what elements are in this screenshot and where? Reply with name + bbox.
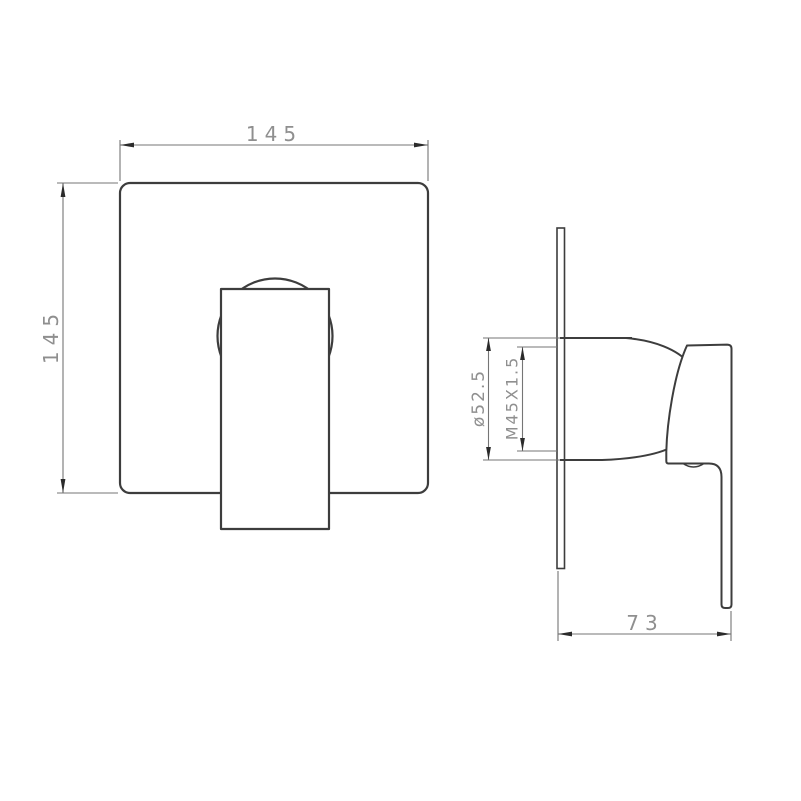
front-width-label: 145 [246, 122, 302, 146]
thread-dimension: M45X1.5 [503, 347, 558, 451]
front-height-dimension: 145 [39, 183, 118, 493]
arrowhead-up-icon [486, 338, 491, 351]
side-plate-outline [557, 228, 565, 569]
arrowhead-down-icon [486, 447, 491, 460]
arrowhead-up-icon [61, 183, 66, 197]
side-diameter-label: ø52.5 [469, 369, 489, 427]
front-width-dimension: 145 [120, 122, 428, 181]
arrowhead-left-icon [120, 143, 134, 148]
front-height-label: 145 [39, 308, 63, 364]
depth-dimension: 73 [558, 571, 731, 641]
arrowhead-down-icon [61, 479, 66, 493]
side-depth-label: 73 [626, 611, 663, 635]
front-handle-outline [221, 289, 329, 529]
side-handle-outline [666, 345, 731, 608]
arrowhead-right-icon [414, 143, 428, 148]
side-thread-label: M45X1.5 [503, 356, 522, 441]
front-view: 145 145 [39, 122, 428, 529]
diameter-dimension: ø52.5 [469, 338, 491, 460]
arrowhead-right-icon [717, 632, 731, 637]
arrowhead-left-icon [558, 632, 572, 637]
shower-mixer-technical-drawing: 145 145 ø52.5 [0, 0, 801, 801]
side-view: ø52.5 M45X1.5 73 [469, 228, 732, 641]
body-bottom-line [560, 448, 670, 460]
drawing-canvas: 145 145 ø52.5 [0, 0, 801, 801]
